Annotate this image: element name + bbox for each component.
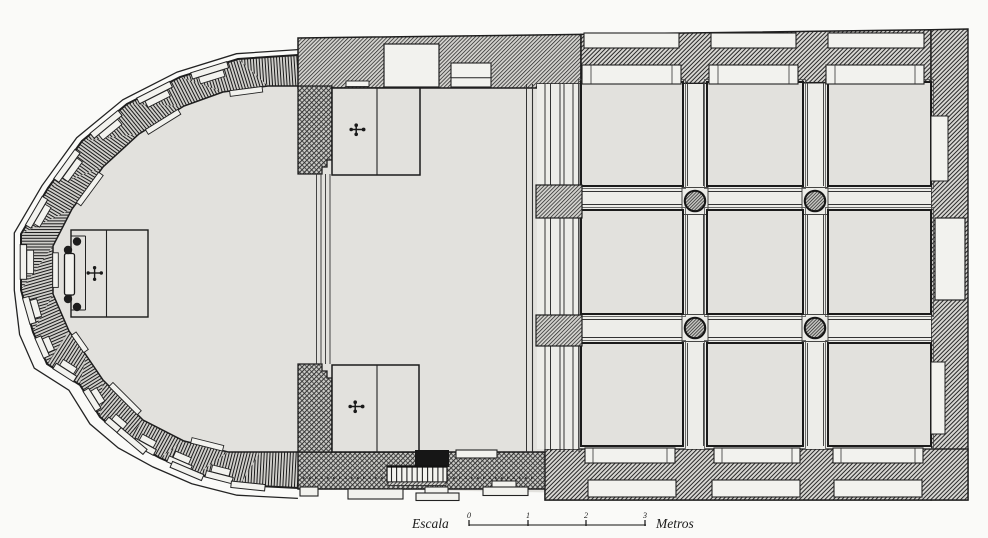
svg-text:3: 3 <box>642 511 647 520</box>
svg-text:2: 2 <box>584 511 588 520</box>
svg-text:Escala: Escala <box>411 516 449 531</box>
svg-text:1: 1 <box>526 511 530 520</box>
svg-text:Metros: Metros <box>655 516 694 531</box>
svg-text:0: 0 <box>467 511 471 520</box>
